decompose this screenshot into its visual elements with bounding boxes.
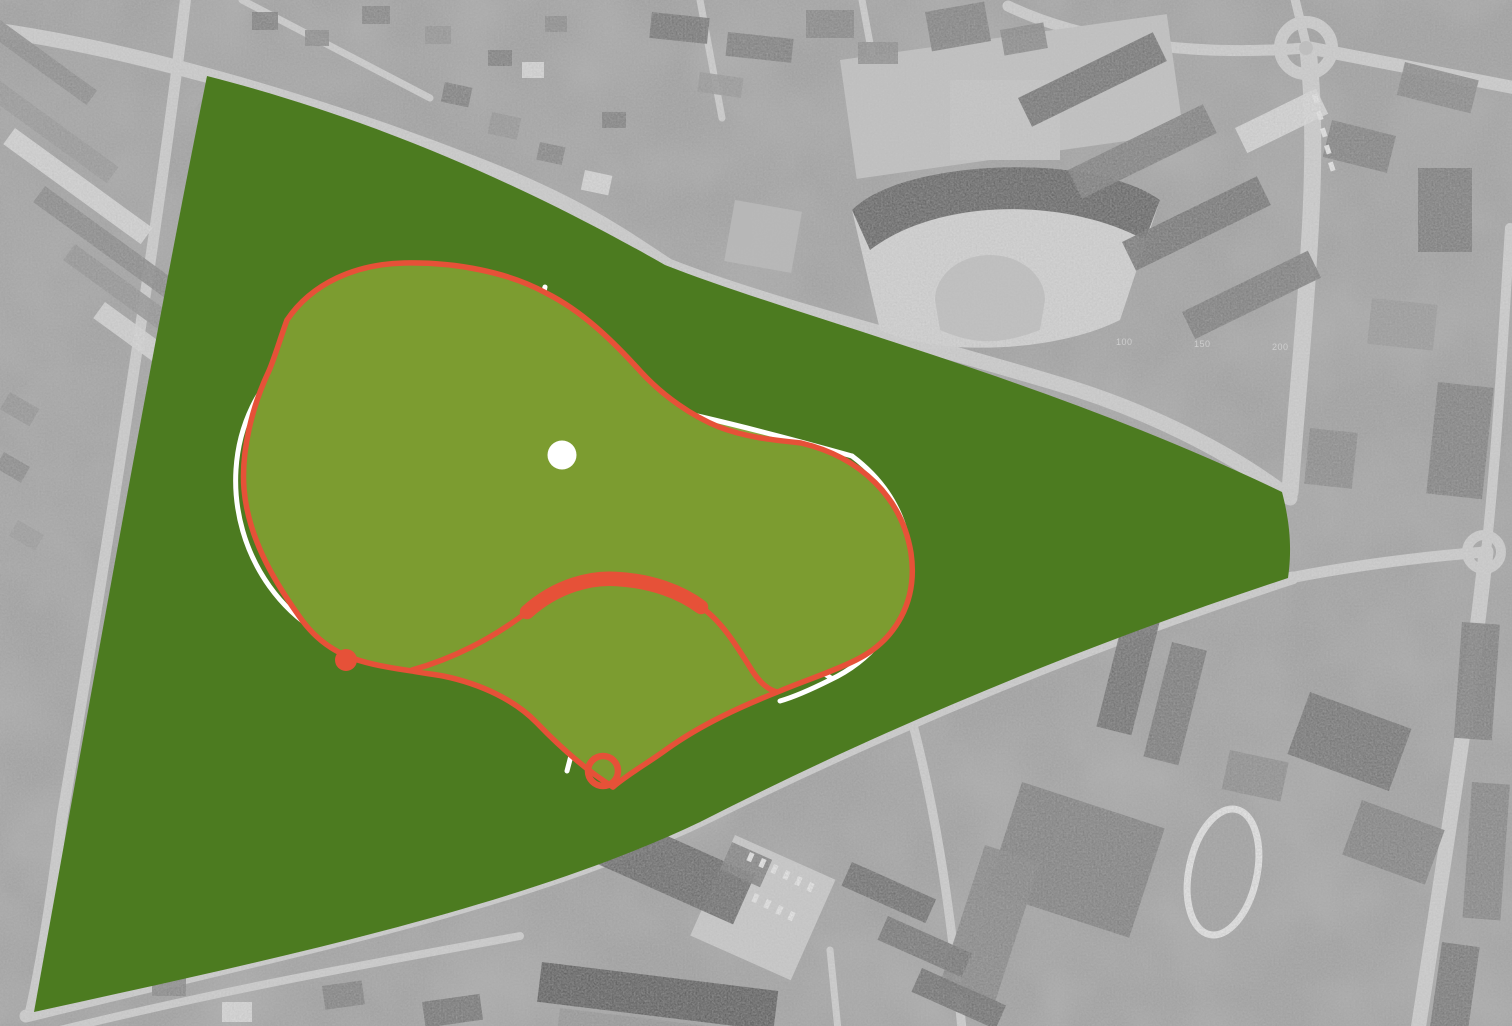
red-marker-dot (335, 649, 357, 671)
map-canvas: 100 150 200 (0, 0, 1512, 1026)
central-path-node (548, 441, 577, 470)
masterplan-map: 100 150 200 (0, 0, 1512, 1026)
